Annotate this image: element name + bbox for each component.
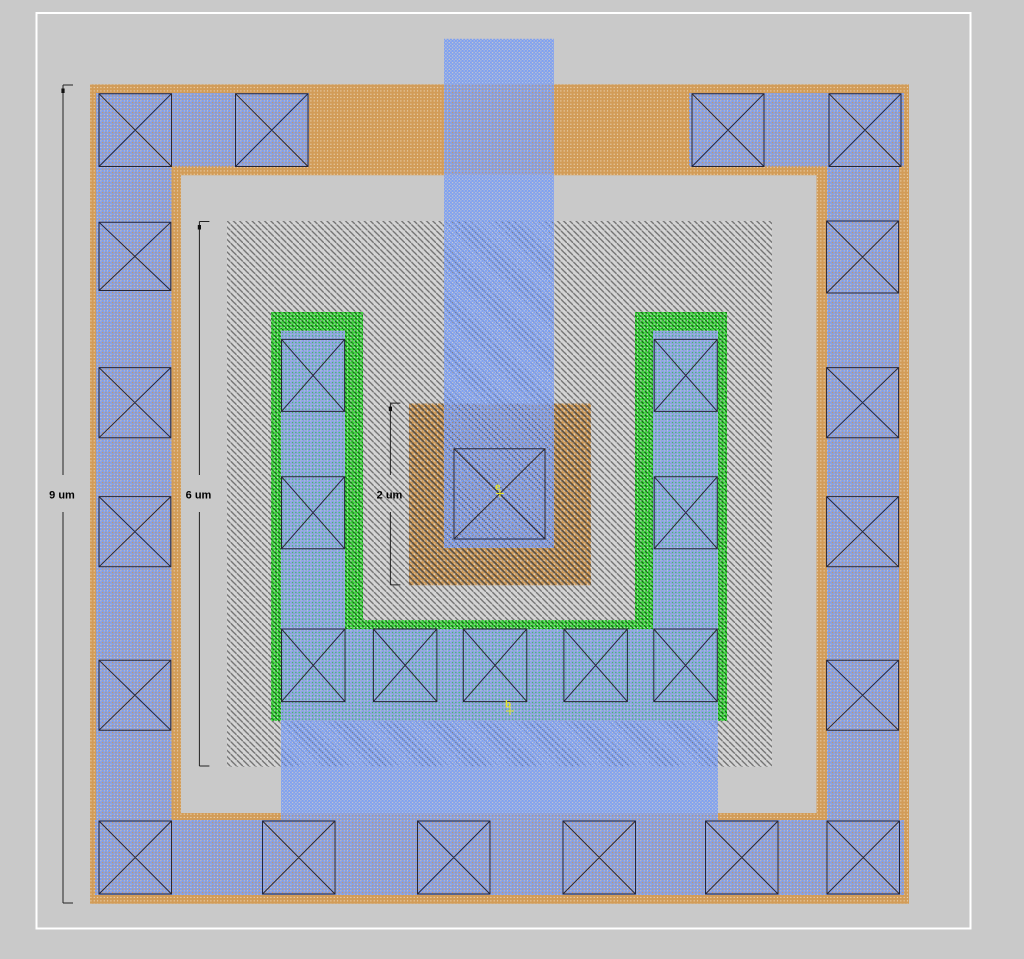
svg-text:6 um: 6 um xyxy=(186,490,212,502)
svg-text:2 um: 2 um xyxy=(377,490,403,502)
svg-text:e: e xyxy=(495,482,501,493)
svg-text:9 um: 9 um xyxy=(49,490,75,502)
svg-text:b: b xyxy=(505,700,511,711)
